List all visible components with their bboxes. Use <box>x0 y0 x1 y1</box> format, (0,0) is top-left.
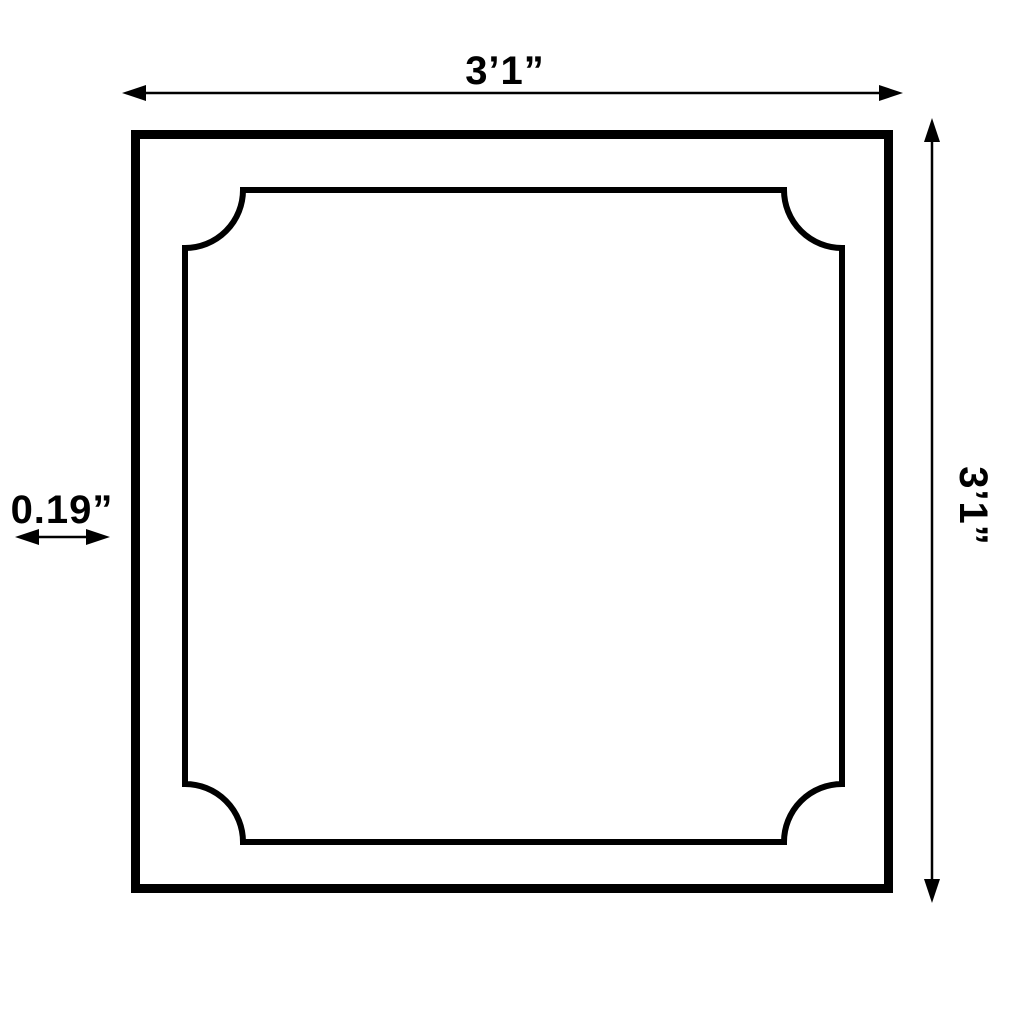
width-dimension: 3’1” <box>122 49 903 101</box>
arrow-left-icon <box>122 85 146 101</box>
thickness-dimension-label: 0.19” <box>11 488 114 532</box>
diagram-canvas: 3’1” 3’1” 0.19” <box>0 0 1024 1024</box>
height-dimension: 3’1” <box>924 118 995 903</box>
arrow-right-icon <box>879 85 903 101</box>
arrow-down-icon <box>924 879 940 903</box>
dimension-diagram: 3’1” 3’1” 0.19” <box>0 0 1024 1024</box>
thickness-dimension: 0.19” <box>11 488 114 545</box>
height-dimension-label: 3’1” <box>951 466 995 546</box>
width-dimension-label: 3’1” <box>465 49 545 93</box>
arrow-up-icon <box>924 118 940 142</box>
inner-panel-outline <box>185 190 842 842</box>
outer-square-outline <box>136 135 889 889</box>
